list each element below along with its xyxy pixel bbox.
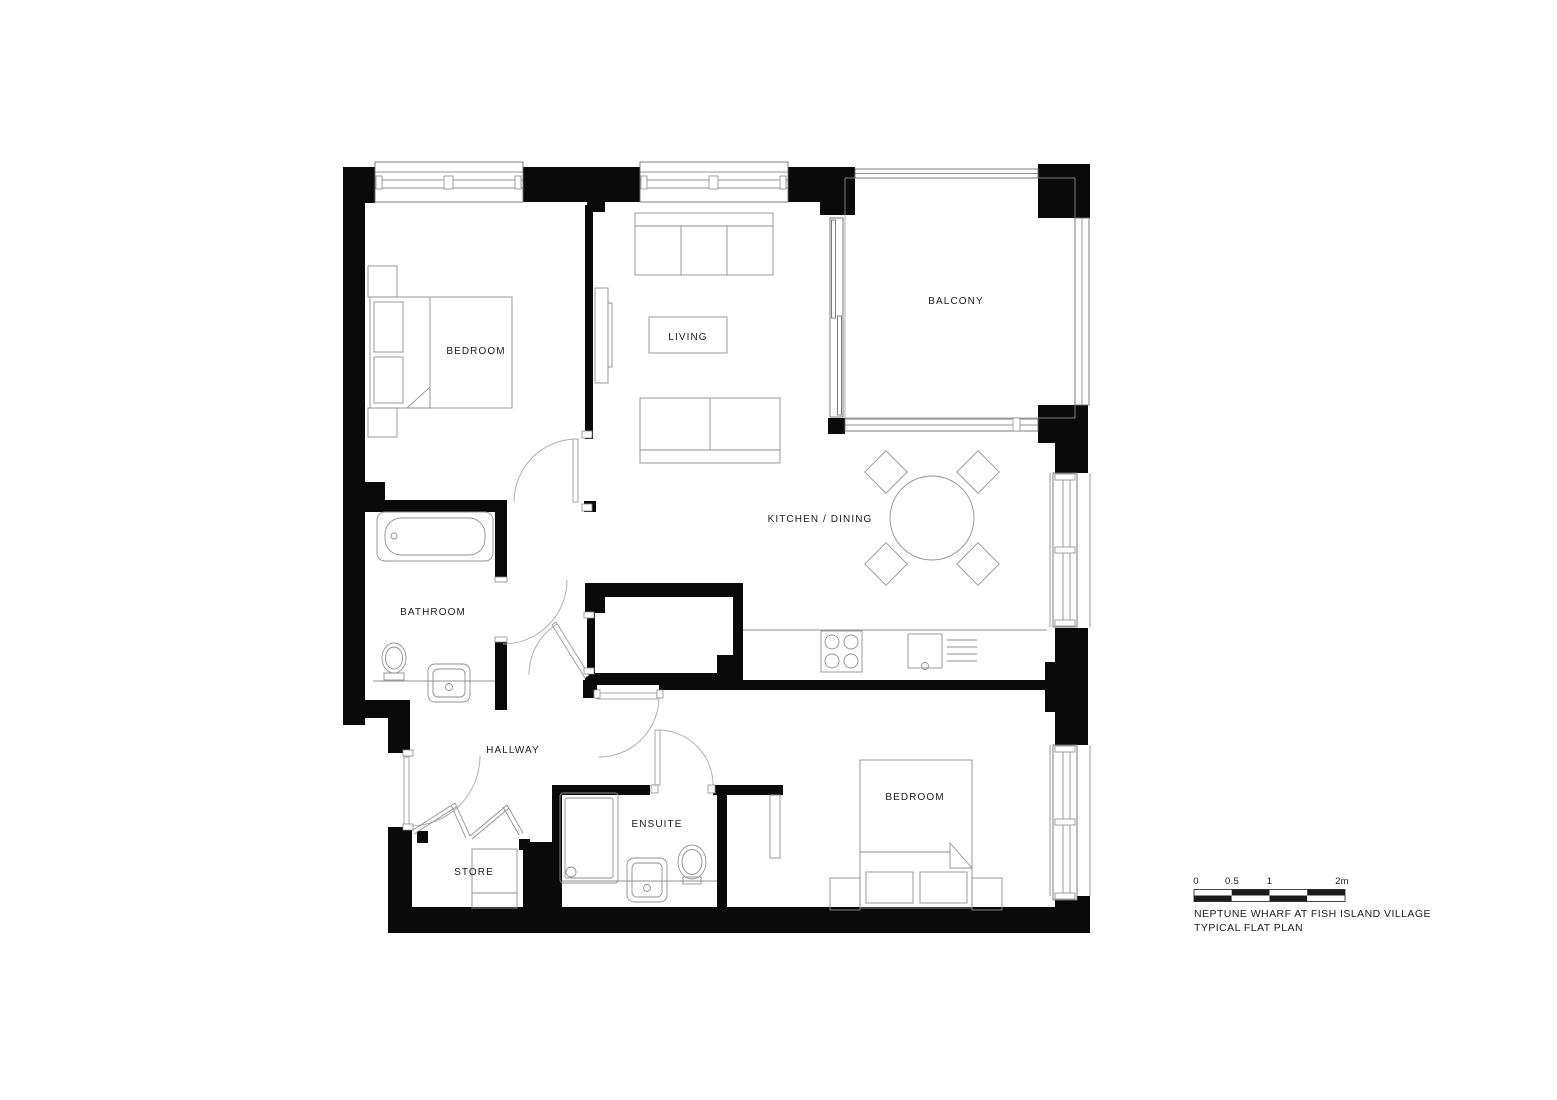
room-label-store: STORE	[454, 867, 494, 878]
tv-unit	[595, 288, 612, 383]
window-living	[640, 162, 788, 202]
room-label-bedroom-2: BEDROOM	[885, 792, 944, 803]
sofa-small	[640, 398, 780, 463]
bathtub-symbol	[377, 512, 493, 561]
pillow	[866, 872, 913, 903]
washbasin-symbol	[428, 664, 470, 702]
doors-layer	[403, 431, 715, 839]
room-label-hallway: HALLWAY	[486, 745, 540, 756]
room-label-ensuite: ENSUITE	[631, 819, 682, 830]
bedside-table	[368, 408, 397, 437]
furniture-layer	[368, 213, 1047, 910]
kitchen-sink-symbol	[908, 634, 977, 670]
duvet-fold	[407, 387, 430, 408]
sofa-large	[635, 213, 773, 275]
door-store-bifold	[413, 803, 523, 839]
pillow	[374, 302, 403, 352]
washbasin-symbol	[627, 858, 667, 902]
bedside-table	[830, 878, 860, 910]
pillow	[374, 357, 403, 403]
door-bedroom-2	[594, 690, 663, 757]
title-line-2: TYPICAL FLAT PLAN	[1194, 922, 1303, 934]
scale-bar: 0 0.5 1 2m	[1193, 876, 1349, 902]
hob-symbol	[821, 631, 862, 672]
bedside-table	[972, 878, 1002, 910]
shower-symbol	[560, 793, 618, 883]
scale-tick-05: 0.5	[1225, 876, 1239, 887]
room-label-living: LIVING	[668, 332, 707, 343]
dining-chair	[865, 543, 907, 585]
door-entrance	[403, 750, 480, 830]
dining-chair	[865, 451, 907, 493]
title-line-1: NEPTUNE WHARF AT FISH ISLAND VILLAGE	[1194, 908, 1431, 920]
kitchen-counter	[743, 630, 1047, 672]
scale-tick-1: 1	[1267, 876, 1273, 887]
scale-tick-2m: 2m	[1335, 876, 1349, 887]
floor-plan-canvas: BEDROOM LIVING BALCONY KITCHEN / DINING …	[0, 0, 1557, 1100]
double-bed-2	[860, 760, 972, 908]
dining-chair	[957, 451, 999, 493]
door-bedroom-1	[514, 431, 592, 511]
store-shelving	[472, 849, 517, 908]
window-bedroom-1	[375, 162, 523, 202]
pillow	[920, 872, 967, 903]
duvet-fold	[950, 843, 972, 868]
walls-layer	[343, 164, 1090, 933]
partition-stub	[770, 795, 780, 858]
window-bedroom-2	[1050, 745, 1090, 900]
drawing-title: NEPTUNE WHARF AT FISH ISLAND VILLAGE TYP…	[1194, 908, 1431, 934]
dining-table	[890, 476, 974, 560]
scale-tick-0: 0	[1193, 876, 1199, 887]
room-label-bathroom: BATHROOM	[400, 607, 466, 618]
room-label-bedroom-1: BEDROOM	[446, 346, 505, 357]
toilet-symbol	[382, 643, 406, 680]
room-label-kitchen-dining: KITCHEN / DINING	[768, 514, 873, 525]
door-ensuite	[651, 730, 715, 793]
dining-set	[865, 451, 999, 585]
door-bathroom	[495, 577, 567, 644]
window-kitchen	[1050, 473, 1090, 627]
door-kitchen	[529, 612, 594, 678]
bedside-table	[368, 266, 397, 297]
toilet-symbol	[678, 845, 706, 884]
dining-chair	[957, 543, 999, 585]
sliding-door	[830, 218, 843, 417]
room-label-balcony: BALCONY	[928, 296, 984, 307]
